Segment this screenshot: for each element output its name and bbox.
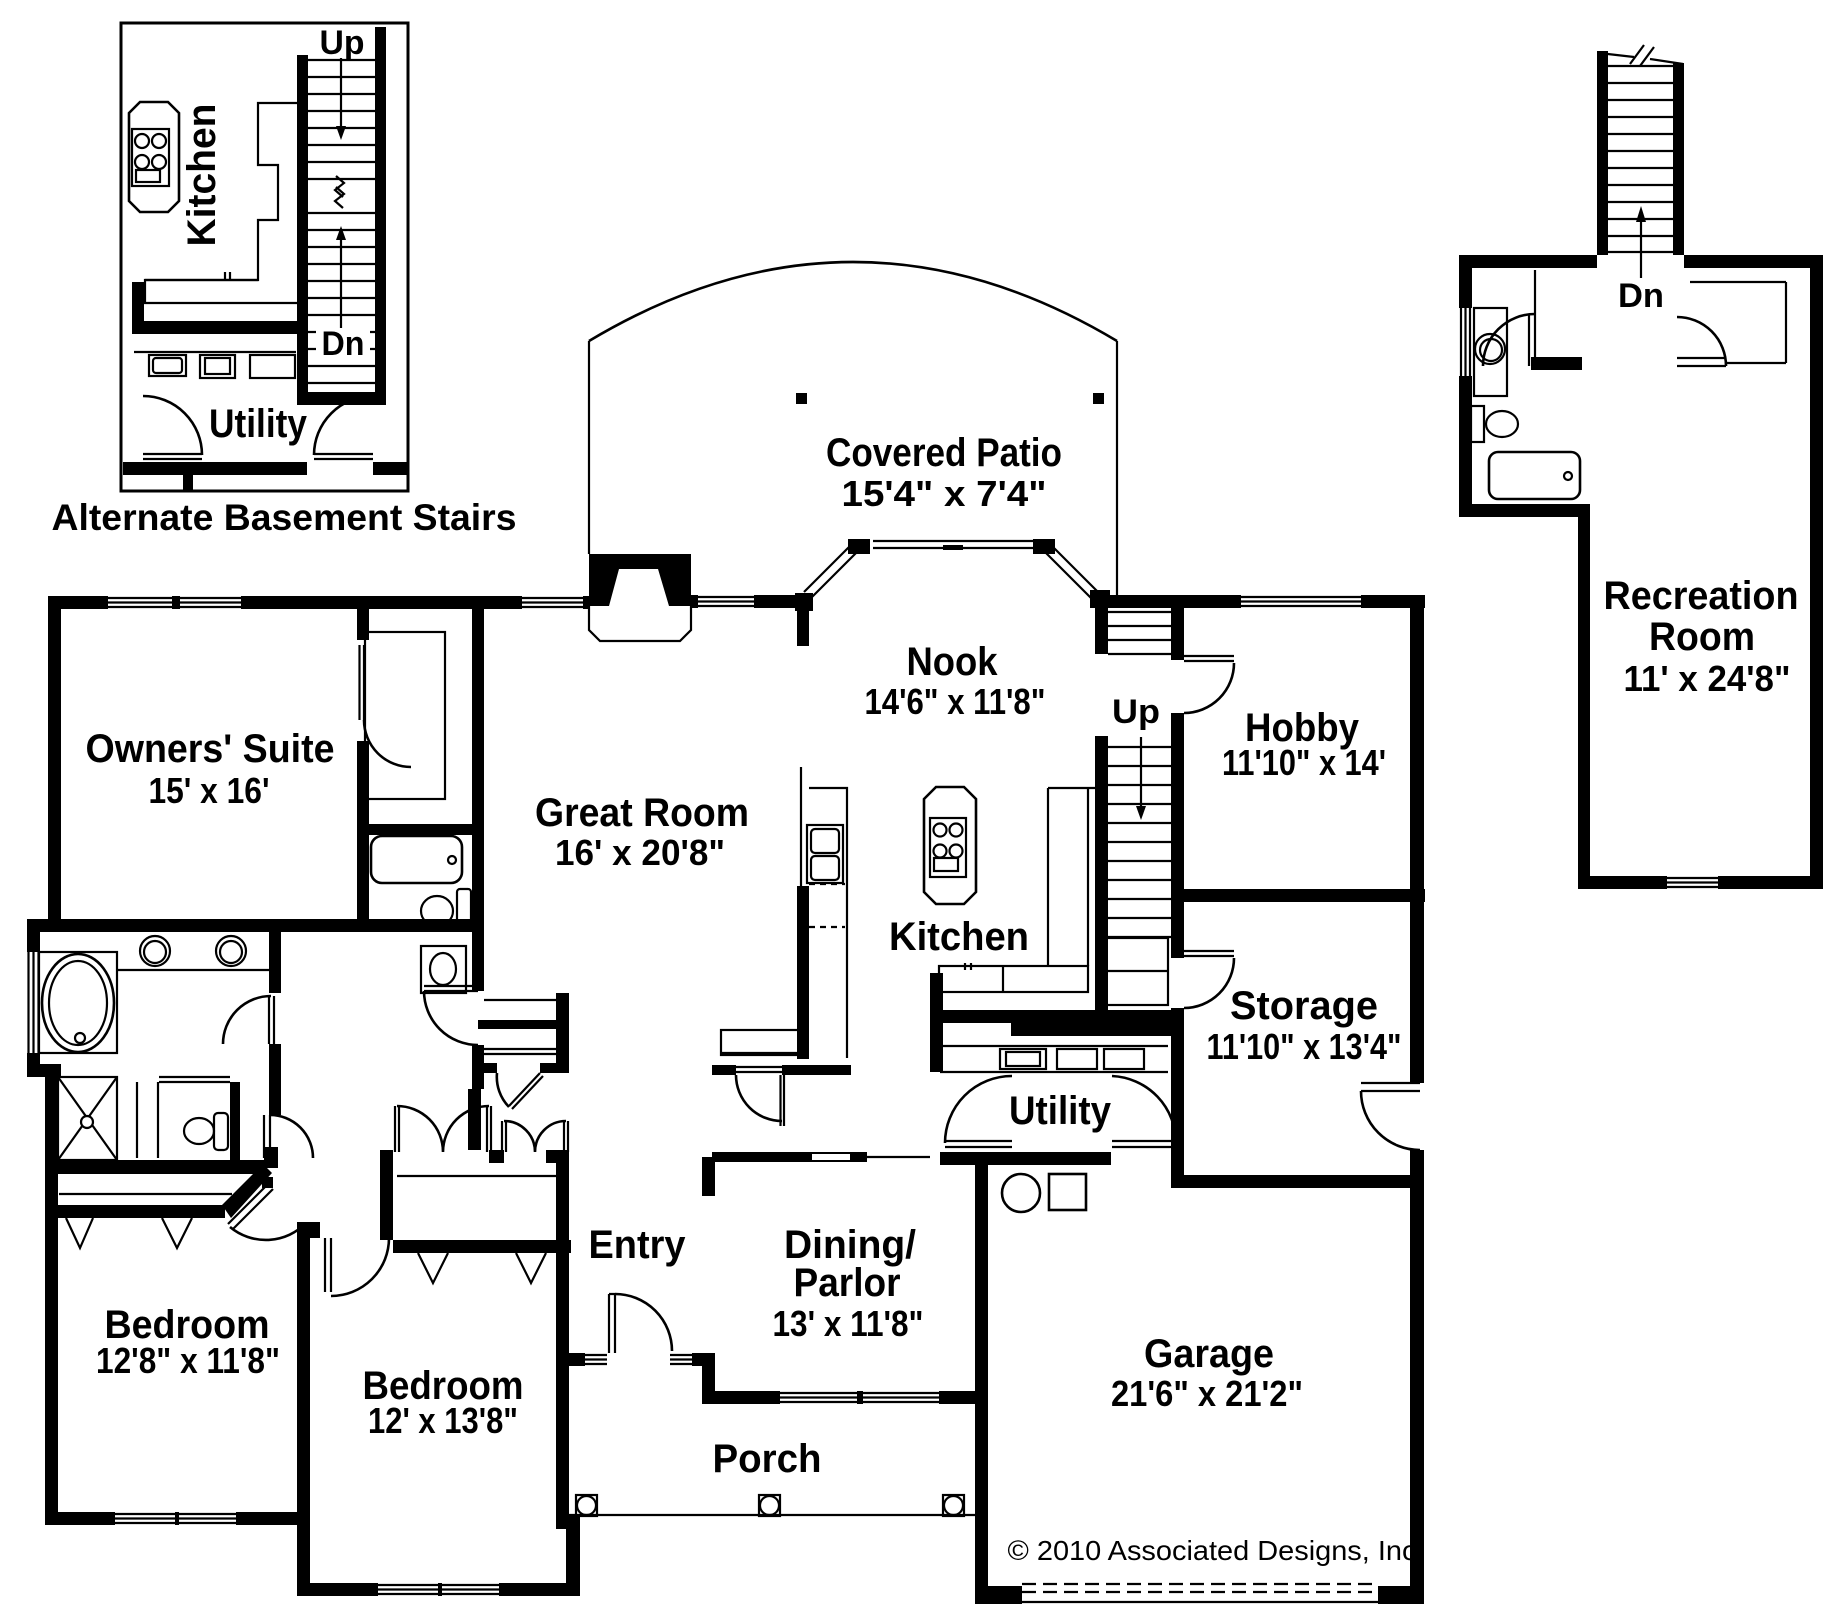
svg-text:Owners' Suite: Owners' Suite — [86, 727, 335, 771]
svg-text:Porch: Porch — [713, 1437, 822, 1481]
svg-text:Alternate Basement Stairs: Alternate Basement Stairs — [52, 497, 517, 538]
svg-text:Great Room: Great Room — [535, 791, 749, 835]
svg-text:12'8" x 11'8": 12'8" x 11'8" — [96, 1340, 280, 1381]
svg-text:Dn: Dn — [1618, 277, 1664, 315]
svg-text:15' x 16': 15' x 16' — [149, 770, 270, 811]
svg-text:Recreation: Recreation — [1604, 574, 1799, 618]
svg-text:21'6" x 21'2": 21'6" x 21'2" — [1111, 1373, 1303, 1414]
svg-text:Entry: Entry — [589, 1223, 687, 1267]
svg-text:15'4" x 7'4": 15'4" x 7'4" — [842, 473, 1047, 514]
svg-text:11' x 24'8": 11' x 24'8" — [1624, 658, 1791, 699]
svg-text:Kitchen: Kitchen — [889, 915, 1029, 959]
svg-text:16' x 20'8": 16' x 20'8" — [555, 832, 725, 873]
svg-text:11'10" x 13'4": 11'10" x 13'4" — [1207, 1026, 1402, 1067]
svg-text:© 2010 Associated Designs, Inc: © 2010 Associated Designs, Inc. — [1008, 1535, 1425, 1566]
svg-text:Parlor: Parlor — [794, 1261, 901, 1305]
svg-text:Kitchen: Kitchen — [180, 104, 224, 247]
svg-text:Up: Up — [1112, 693, 1160, 731]
svg-text:Utility: Utility — [1009, 1089, 1112, 1133]
svg-text:Utility: Utility — [209, 402, 308, 446]
svg-text:Nook: Nook — [907, 640, 999, 684]
svg-text:Dn: Dn — [322, 325, 365, 363]
svg-text:Garage: Garage — [1144, 1332, 1274, 1376]
svg-text:11'10" x 14': 11'10" x 14' — [1222, 742, 1386, 783]
svg-text:Storage: Storage — [1230, 984, 1378, 1028]
svg-text:Up: Up — [320, 24, 365, 62]
svg-text:Room: Room — [1649, 615, 1755, 659]
svg-text:13' x 11'8": 13' x 11'8" — [773, 1303, 924, 1344]
svg-text:14'6" x 11'8": 14'6" x 11'8" — [865, 681, 1046, 722]
svg-text:12' x 13'8": 12' x 13'8" — [368, 1400, 518, 1441]
svg-text:Covered Patio: Covered Patio — [826, 431, 1062, 475]
